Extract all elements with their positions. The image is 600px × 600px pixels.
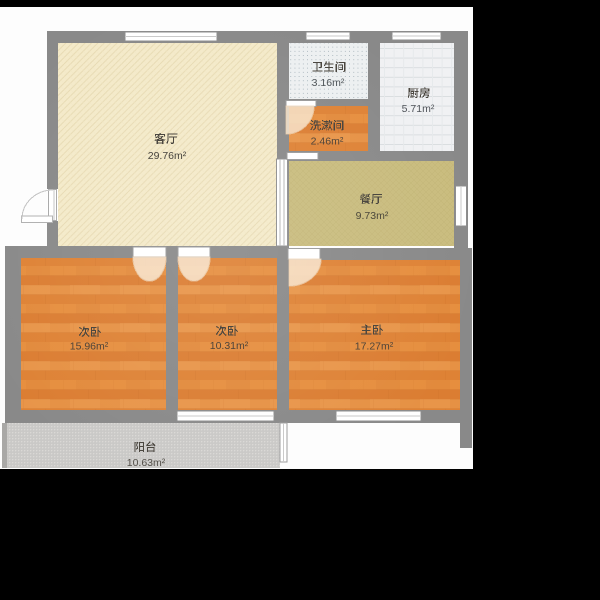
svg-text:10.63m²: 10.63m²	[127, 457, 166, 469]
svg-text:2.46m²: 2.46m²	[311, 136, 344, 148]
svg-text:10.31m²: 10.31m²	[210, 340, 249, 352]
svg-text:5.71m²: 5.71m²	[402, 103, 435, 115]
svg-text:3.16m²: 3.16m²	[312, 77, 345, 89]
svg-text:9.73m²: 9.73m²	[356, 210, 389, 222]
svg-text:15.96m²: 15.96m²	[70, 341, 109, 353]
svg-text:17.27m²: 17.27m²	[355, 341, 394, 353]
svg-text:29.76m²: 29.76m²	[148, 150, 187, 162]
